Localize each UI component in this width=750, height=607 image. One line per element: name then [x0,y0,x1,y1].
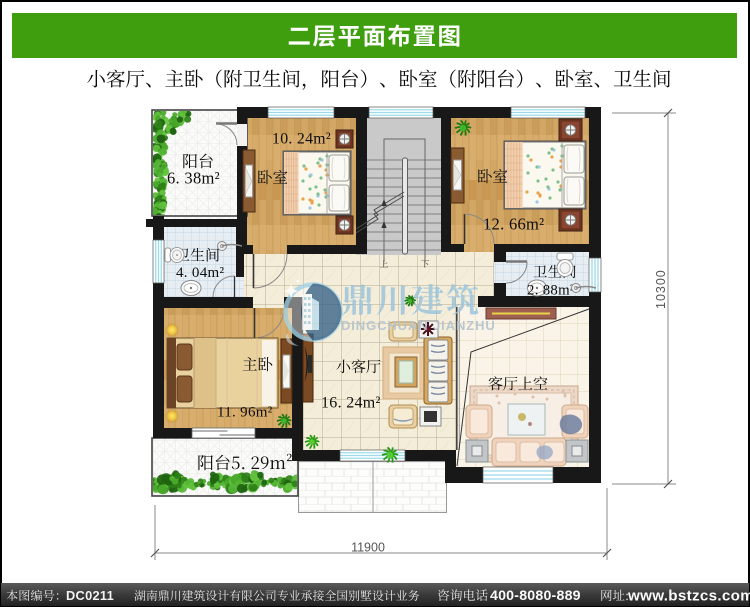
svg-text:12. 66m²: 12. 66m² [483,215,544,234]
svg-text:4. 04m²: 4. 04m² [176,265,224,281]
svg-text:400-8080-889: 400-8080-889 [490,588,581,604]
svg-text:11. 96m²: 11. 96m² [217,405,273,421]
svg-text:10300: 10300 [654,269,668,309]
svg-text:2. 88m²: 2. 88m² [527,283,575,299]
svg-text:www.bstzcs.com: www.bstzcs.com [627,588,750,605]
svg-text:10. 24m²: 10. 24m² [272,131,331,148]
svg-text:16. 24m²: 16. 24m² [321,395,381,412]
svg-text:DINGCHUAN JIANZHU: DINGCHUAN JIANZHU [341,318,496,333]
svg-text:6. 38m²: 6. 38m² [167,169,220,188]
svg-text:DC0211: DC0211 [66,588,114,603]
svg-text:11900: 11900 [351,541,385,555]
